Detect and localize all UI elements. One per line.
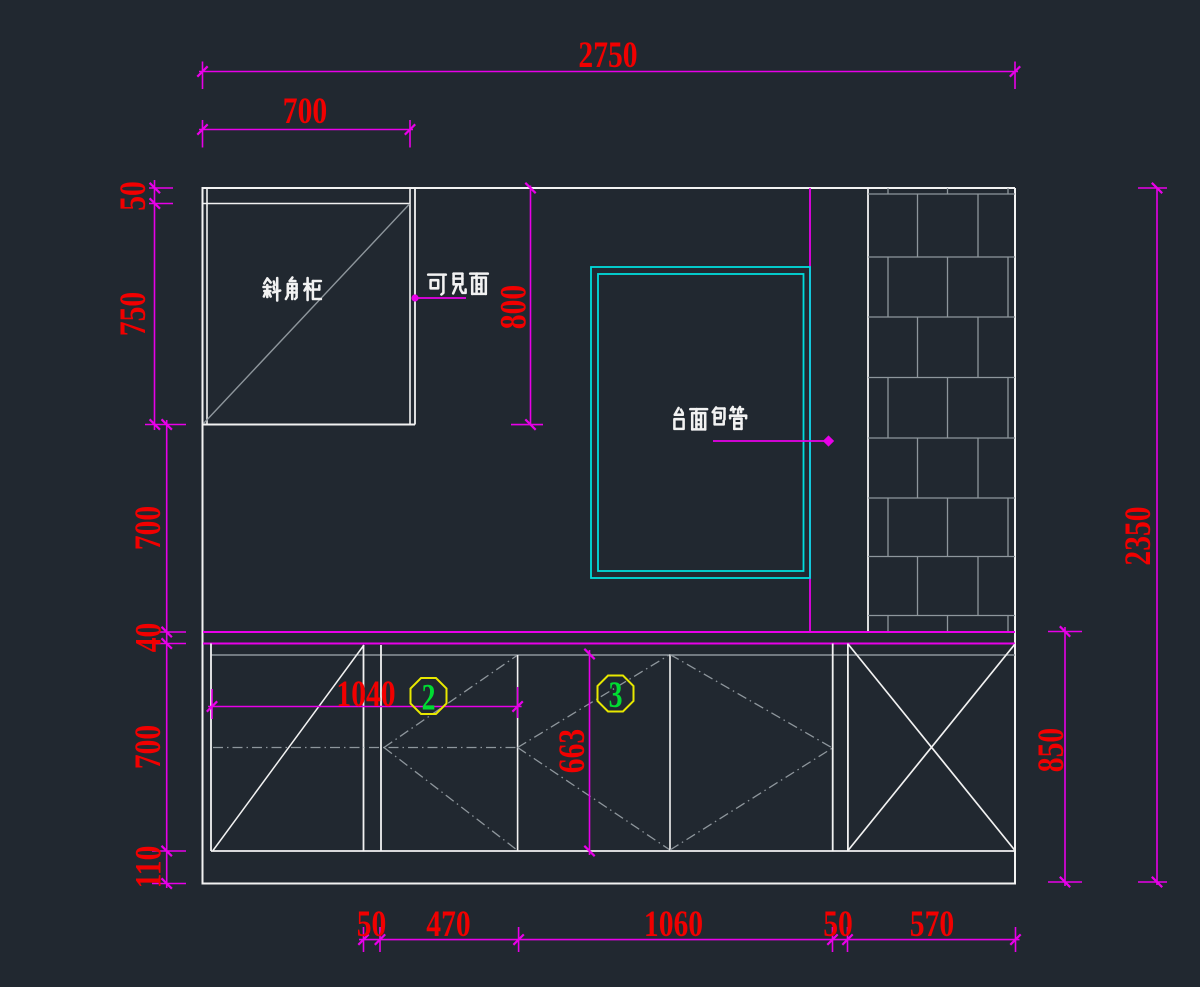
svg-text:700: 700 (283, 91, 327, 132)
svg-text:700: 700 (128, 506, 169, 550)
svg-text:50: 50 (113, 181, 154, 211)
svg-text:3: 3 (609, 675, 623, 716)
svg-text:110: 110 (128, 846, 169, 889)
svg-text:663: 663 (552, 729, 593, 773)
svg-text:2: 2 (422, 678, 436, 719)
svg-text:2750: 2750 (578, 35, 637, 76)
svg-text:570: 570 (910, 904, 954, 945)
svg-text:700: 700 (128, 725, 169, 769)
svg-text:1040: 1040 (336, 674, 395, 715)
svg-text:50: 50 (823, 904, 853, 945)
svg-text:750: 750 (113, 292, 154, 336)
svg-text:40: 40 (128, 623, 169, 653)
svg-text:2350: 2350 (1118, 506, 1159, 565)
svg-text:470: 470 (426, 904, 470, 945)
svg-text:1060: 1060 (644, 904, 703, 945)
svg-text:850: 850 (1031, 728, 1072, 772)
svg-text:800: 800 (493, 285, 534, 329)
svg-text:50: 50 (357, 904, 387, 945)
